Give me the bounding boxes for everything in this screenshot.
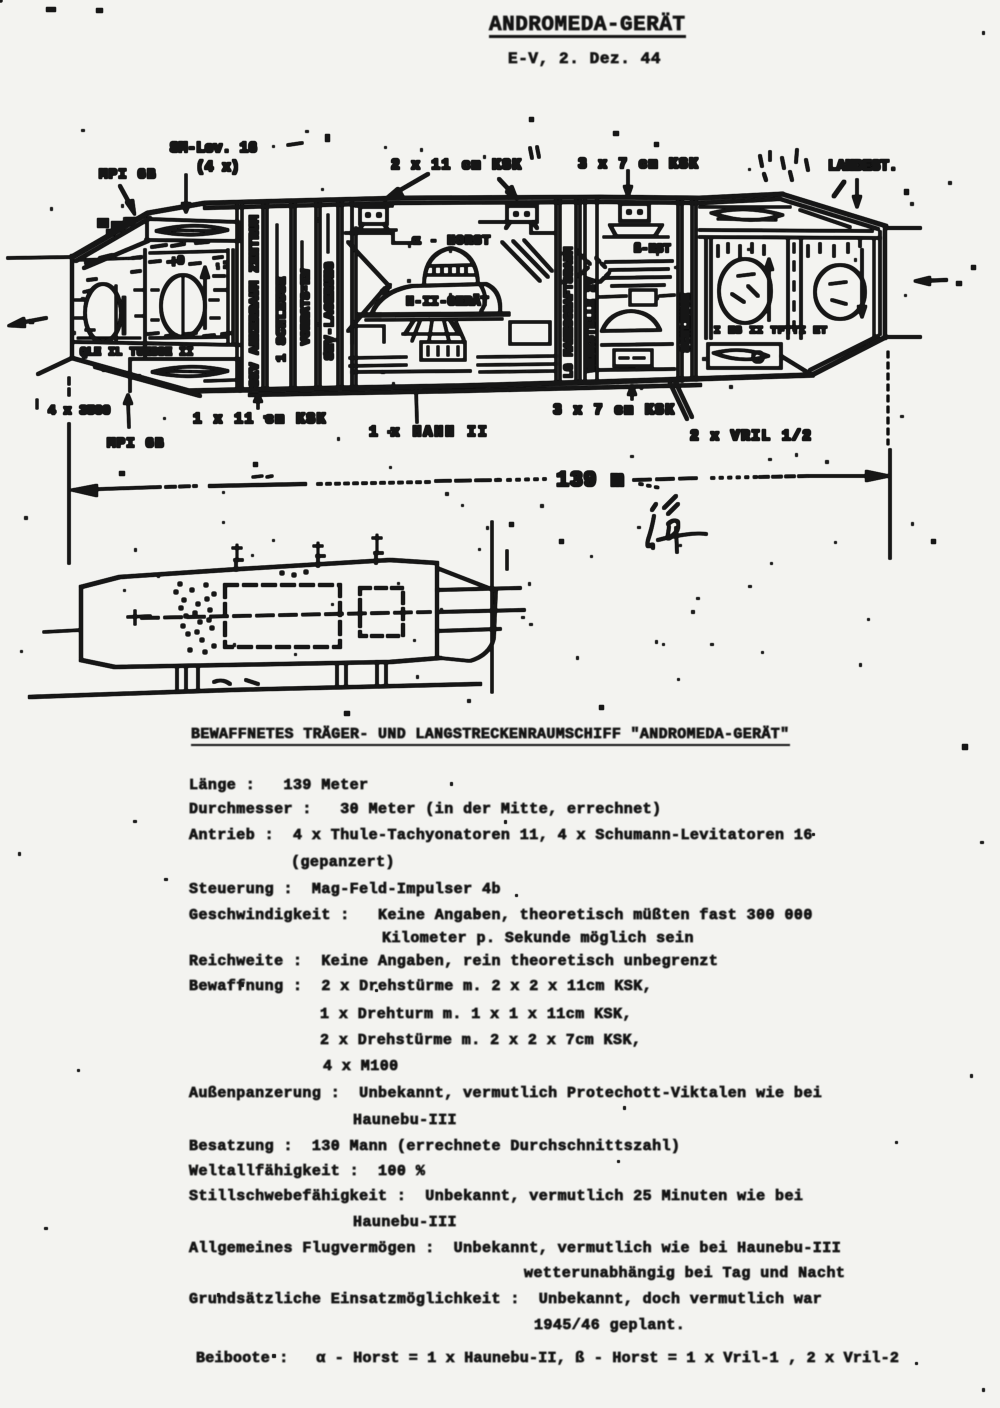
svg-text:QLE IL TUKSSE II: QLE IL TUKSSE II xyxy=(80,347,194,359)
svg-text:1 x HAHN II: 1 x HAHN II xyxy=(369,425,489,441)
svg-text:SEV-LAGERUNG: SEV-LAGERUNG xyxy=(322,262,337,360)
svg-text:3 x 7 cm KSK: 3 x 7 cm KSK xyxy=(578,157,699,173)
svg-text:3 x 7 cm KSK: 3 x 7 cm KSK xyxy=(553,403,675,419)
svg-text:α - HORST: α - HORST xyxy=(412,233,491,248)
svg-text:SKV ANKERRAUM ZENTRUM: SKV ANKERRAUM ZENTRUM xyxy=(247,215,262,387)
svg-text:(4 x): (4 x) xyxy=(196,160,240,176)
svg-text:MPI 6B: MPI 6B xyxy=(107,436,165,452)
svg-text:VORRATS-KW: VORRATS-KW xyxy=(299,269,313,345)
svg-text:MPI 6B: MPI 6B xyxy=(99,167,157,183)
svg-text:I ES II TFTTI ET: I ES II TFTTI ET xyxy=(714,325,828,337)
svg-text:2 x VRIL 1/2: 2 x VRIL 1/2 xyxy=(690,429,812,445)
svg-text:4 x 3500: 4 x 3500 xyxy=(48,403,111,418)
svg-text:WERKSTELLE 2V: WERKSTELLE 2V xyxy=(585,277,598,372)
svg-text:SM-Lev. 16: SM-Lev. 16 xyxy=(170,141,257,157)
svg-text:SCHLEUSE: SCHLEUSE xyxy=(680,293,693,352)
svg-text:·:: ·: xyxy=(214,258,228,272)
svg-text:1 SCHLEUSE: 1 SCHLEUSE xyxy=(274,276,289,362)
svg-text:LANDEST.: LANDEST. xyxy=(828,159,898,175)
svg-text:H-II-GERÄT: H-II-GERÄT xyxy=(406,294,489,309)
svg-text:1 x 11 cm KSK: 1 x 11 cm KSK xyxy=(193,412,327,428)
svg-text:139 m: 139 m xyxy=(556,468,625,493)
svg-text:2 x 11 cm KSK: 2 x 11 cm KSK xyxy=(391,158,522,174)
svg-text:ß-HST: ß-HST xyxy=(634,243,671,256)
svg-text:LG MANNSCHAFTSRAUM: LG MANNSCHAFTSRAUM xyxy=(563,247,576,378)
